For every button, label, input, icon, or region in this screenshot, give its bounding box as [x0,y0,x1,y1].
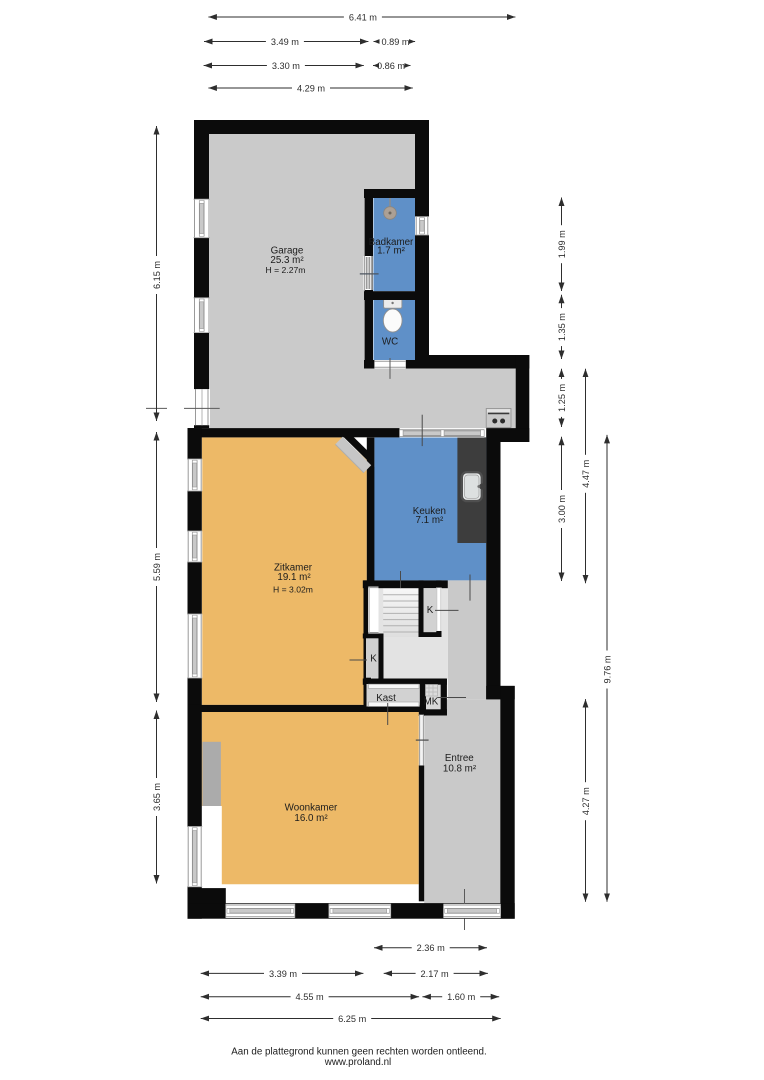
svg-text:WC: WC [382,337,398,348]
svg-text:6.15 m: 6.15 m [152,261,162,289]
svg-text:1.7 m²: 1.7 m² [377,245,406,256]
svg-text:Kast: Kast [376,693,396,704]
svg-text:3.65 m: 3.65 m [152,783,162,811]
svg-text:1.25 m: 1.25 m [557,384,567,412]
svg-text:1.99 m: 1.99 m [557,230,567,258]
svg-text:4.29 m: 4.29 m [297,83,325,93]
svg-text:2.36 m: 2.36 m [417,943,445,953]
svg-text:4.47 m: 4.47 m [581,459,591,487]
svg-text:3.49 m: 3.49 m [271,37,299,47]
svg-text:5.59 m: 5.59 m [152,553,162,581]
svg-text:19.1 m²: 19.1 m² [277,572,311,583]
svg-text:4.27 m: 4.27 m [581,787,591,815]
svg-text:Entree: Entree [445,753,474,764]
svg-text:H = 3.02m: H = 3.02m [273,585,313,595]
svg-text:3.30 m: 3.30 m [272,61,300,71]
svg-text:0.89 m: 0.89 m [381,37,409,47]
svg-text:2.17 m: 2.17 m [421,969,449,979]
svg-text:www.proland.nl: www.proland.nl [324,1057,391,1068]
svg-text:K: K [427,605,434,616]
svg-text:3.39 m: 3.39 m [269,969,297,979]
svg-text:K: K [370,654,377,665]
svg-text:9.76 m: 9.76 m [602,655,612,683]
svg-text:7.1 m²: 7.1 m² [416,515,445,526]
svg-text:Aan de plattegrond kunnen geen: Aan de plattegrond kunnen geen rechten w… [231,1047,486,1058]
svg-text:MK: MK [424,697,439,708]
svg-text:1.60 m: 1.60 m [447,992,475,1002]
svg-text:6.41 m: 6.41 m [349,12,377,22]
svg-text:16.0 m²: 16.0 m² [294,813,328,824]
svg-text:6.25 m: 6.25 m [338,1014,366,1024]
svg-text:4.55 m: 4.55 m [296,992,324,1002]
svg-text:1.35 m: 1.35 m [557,313,567,341]
svg-text:3.00 m: 3.00 m [557,495,567,523]
svg-text:0.86 m: 0.86 m [377,61,405,71]
svg-text:H = 2.27m: H = 2.27m [266,265,306,275]
svg-text:10.8 m²: 10.8 m² [443,764,477,775]
